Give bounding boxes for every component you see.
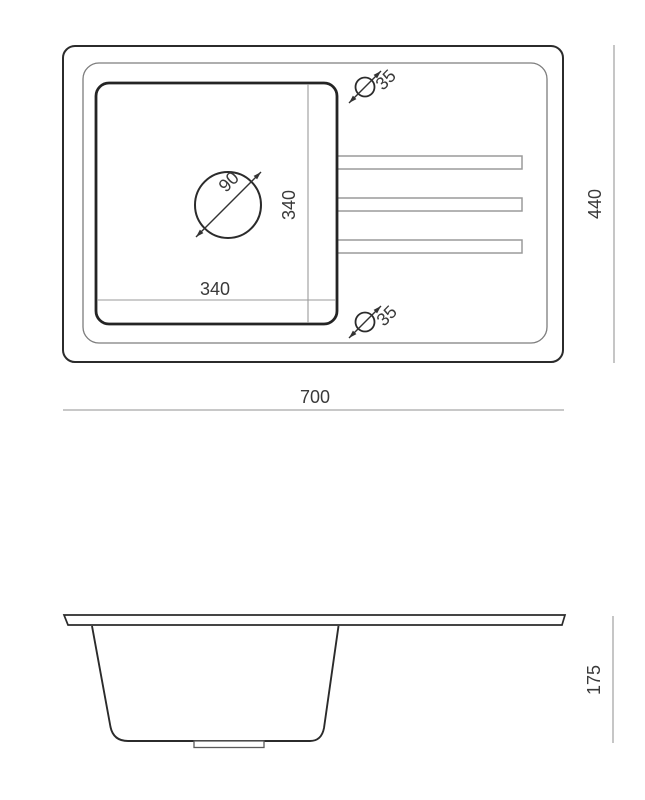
- bowl-profile: [92, 626, 339, 741]
- side-view: 175: [64, 615, 613, 748]
- sink-technical-drawing: 340 340 90 35: [0, 0, 645, 800]
- dimension-overall-width: 700: [63, 387, 564, 410]
- drain-fitting: [194, 741, 264, 748]
- drainboard-groove-middle: [337, 198, 522, 211]
- drainboard-groove-top: [337, 156, 522, 169]
- counter-slab: [64, 615, 565, 625]
- basin-height-label: 340: [279, 190, 299, 220]
- depth-label: 175: [584, 665, 604, 695]
- top-view: 340 340 90 35: [63, 45, 614, 410]
- basin-width-label: 340: [200, 279, 230, 299]
- overall-width-label: 700: [300, 387, 330, 407]
- dimension-depth: 175: [584, 616, 613, 743]
- dimension-overall-height: 440: [585, 45, 614, 363]
- drawing-svg: 340 340 90 35: [0, 0, 645, 800]
- overall-height-label: 440: [585, 189, 605, 219]
- drainboard-groove-bottom: [337, 240, 522, 253]
